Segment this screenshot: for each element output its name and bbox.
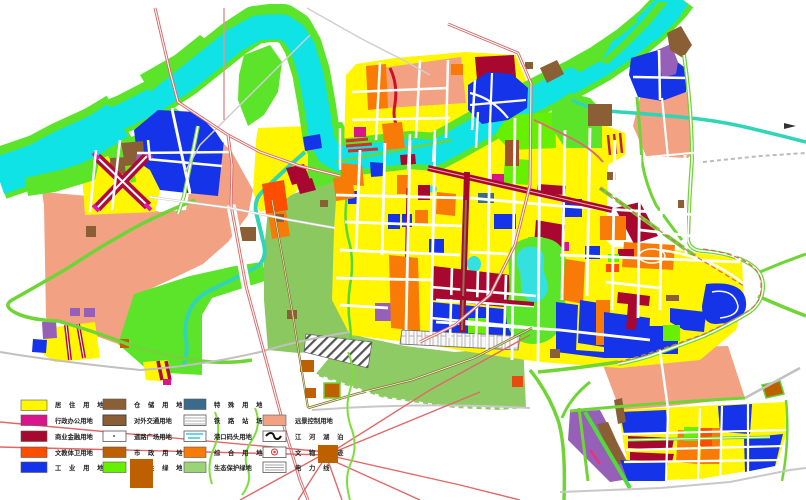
svg-text:行政办公用地: 行政办公用地	[54, 416, 93, 425]
svg-text:港口码头用地: 港口码头用地	[214, 432, 252, 441]
svg-text:铁 路 站 场: 铁 路 站 场	[213, 416, 265, 425]
svg-text:道路广场用地: 道路广场用地	[134, 432, 172, 441]
svg-text:电 力 线: 电 力 线	[295, 463, 332, 472]
svg-text:江 河 湖 泊: 江 河 湖 泊	[295, 432, 346, 441]
svg-text:对外交通用地: 对外交通用地	[134, 416, 172, 425]
svg-text:仓 储 用 地: 仓 储 用 地	[133, 400, 185, 409]
svg-text:远景控制用地: 远景控制用地	[295, 416, 333, 425]
svg-text:综 合 用 地: 综 合 用 地	[214, 448, 265, 457]
svg-text:特 殊 用 地: 特 殊 用 地	[214, 400, 265, 409]
svg-text:生态保护绿地: 生态保护绿地	[214, 463, 252, 472]
svg-text:居 住 用 地: 居 住 用 地	[55, 400, 106, 409]
svg-text:工 业 用 地: 工 业 用 地	[55, 463, 106, 472]
svg-text:市 政 用 地: 市 政 用 地	[134, 448, 185, 457]
svg-text:商业金融用地: 商业金融用地	[55, 432, 93, 441]
svg-text:文教体卫用地: 文教体卫用地	[55, 448, 93, 457]
